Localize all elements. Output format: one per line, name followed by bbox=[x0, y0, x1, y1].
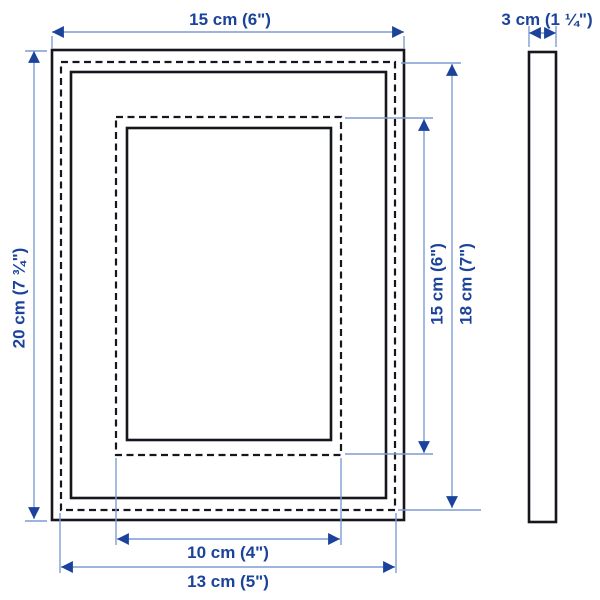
frame-side-view bbox=[529, 52, 556, 522]
dim-depth: 3 cm (1 ¼") bbox=[501, 10, 592, 47]
dim-outer-height: 20 cm (7 ¾") bbox=[10, 51, 48, 521]
opening-width-label: 10 cm (4") bbox=[187, 543, 269, 562]
frame-front-view bbox=[52, 50, 404, 520]
frame-side-profile bbox=[529, 52, 556, 522]
dim-outer-width: 15 cm (6") bbox=[52, 10, 404, 49]
outer-width-label: 15 cm (6") bbox=[189, 10, 271, 29]
mat-opening-edge bbox=[127, 128, 331, 440]
frame-dimension-diagram: 15 cm (6") 20 cm (7 ¾") 15 cm (6") 18 cm… bbox=[0, 0, 600, 600]
picture-dashed-outline bbox=[116, 117, 341, 455]
frame-outer-edge bbox=[52, 50, 404, 520]
glass-height-label: 18 cm (7") bbox=[457, 243, 476, 325]
opening-height-label: 15 cm (6") bbox=[428, 243, 447, 325]
depth-label: 3 cm (1 ¼") bbox=[501, 10, 592, 29]
outer-height-label: 20 cm (7 ¾") bbox=[10, 248, 29, 349]
frame-inner-edge bbox=[71, 72, 386, 498]
glass-width-label: 13 cm (5") bbox=[187, 572, 269, 591]
